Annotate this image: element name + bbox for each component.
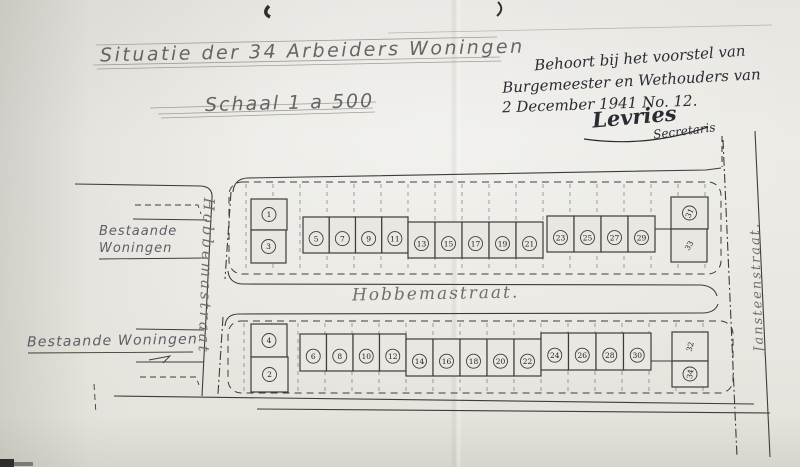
house-number: 16 xyxy=(442,357,452,366)
house-number: 26 xyxy=(577,351,587,360)
south-street-line xyxy=(114,396,754,404)
house-number: 15 xyxy=(444,239,454,248)
ink-curve-mark xyxy=(497,2,501,16)
street-west-edge-line xyxy=(723,140,737,457)
ink-blot-mark xyxy=(266,6,270,17)
house-number: 10 xyxy=(361,352,371,361)
house-number: 24 xyxy=(550,351,560,360)
house-number: 21 xyxy=(525,239,535,248)
street-label-hobbemastraat: Hobbemastraat. xyxy=(352,283,520,306)
south-street-line xyxy=(257,409,770,413)
existing-houses-label-line1: Bestaande xyxy=(99,223,177,240)
house-number: 8 xyxy=(337,352,342,361)
house-number: 4 xyxy=(267,336,272,345)
house-number: 9 xyxy=(366,234,371,243)
existing-houses-label-lower: Bestaande Woningen xyxy=(27,332,198,351)
house-number: 12 xyxy=(388,352,398,361)
south-boundary-lines xyxy=(114,396,770,413)
house-number: 34 xyxy=(685,368,696,379)
street-east-edge-line xyxy=(218,317,223,394)
house-number: 18 xyxy=(469,357,479,366)
house-number: 2 xyxy=(267,370,272,379)
house-number: 30 xyxy=(632,351,642,360)
existing-houses-label-upper: Bestaande Woningen xyxy=(99,223,177,257)
house-number: 17 xyxy=(471,239,481,248)
house-number: 1 xyxy=(267,210,272,219)
house-number: 11 xyxy=(390,234,400,243)
street-south-edge-line xyxy=(225,304,718,326)
house-number: 7 xyxy=(340,234,345,243)
existing-houses-label-line2: Woningen xyxy=(99,240,177,257)
house-number: 6 xyxy=(311,352,316,361)
house-number: 28 xyxy=(605,351,615,360)
house-number: 22 xyxy=(523,357,533,366)
house-number: 5 xyxy=(314,234,319,243)
house-number: 3 xyxy=(266,242,271,251)
house-number: 19 xyxy=(498,239,508,248)
scale-label: Schaal 1 a 500 xyxy=(205,90,375,116)
house-number: 27 xyxy=(610,233,620,242)
house-number: 20 xyxy=(496,357,506,366)
street-east-edge-line xyxy=(225,192,231,279)
house-number: 25 xyxy=(583,233,593,242)
pencil-guide-line xyxy=(388,25,772,33)
house-number: 13 xyxy=(417,239,427,248)
house-number: 14 xyxy=(415,357,425,366)
upper-parcel-top-line xyxy=(233,168,721,192)
street-west-edge-line xyxy=(75,184,212,396)
scanned-site-plan: 1357911131517192123252729313342681012141… xyxy=(0,0,800,467)
house-number: 23 xyxy=(556,233,566,242)
house-number: 29 xyxy=(637,233,647,242)
